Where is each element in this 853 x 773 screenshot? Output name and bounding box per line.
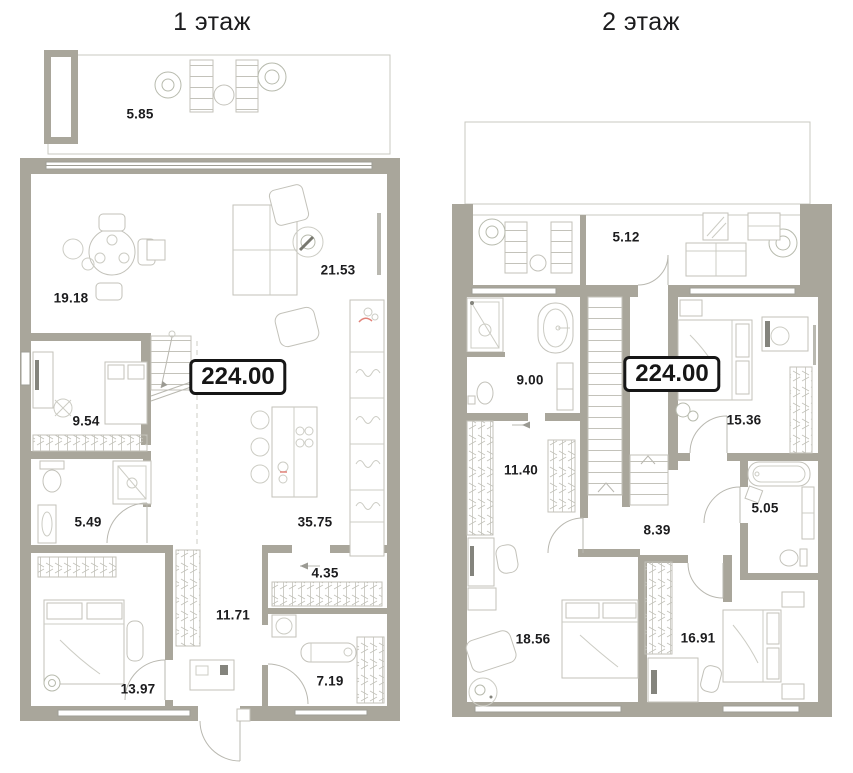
floor1-plan	[20, 50, 400, 761]
area-label-bedroom-1f: 13.97	[121, 682, 156, 697]
area-label-closet: 4.35	[311, 566, 338, 581]
floor2-plan	[452, 122, 832, 717]
floor1-title: 1 этаж	[173, 8, 251, 37]
area-label-utility: 7.19	[316, 674, 343, 689]
area-label-bedroom-3: 16.91	[681, 631, 716, 646]
area-label-bedroom-2: 18.56	[516, 632, 551, 647]
area-label-kitchen: 35.75	[298, 515, 333, 530]
area-label-dining: 19.18	[54, 291, 89, 306]
area-label-bathroom-2f-2: 5.05	[751, 501, 778, 516]
area-label-bathroom-2f: 9.00	[516, 373, 543, 388]
area-label-bathroom-1f: 5.49	[74, 515, 101, 530]
area-label-balcony: 5.12	[612, 230, 639, 245]
area-label-study: 9.54	[72, 414, 99, 429]
area-label-terrace: 5.85	[126, 107, 153, 122]
floor2-title: 2 этаж	[602, 8, 680, 37]
area-label-hallway: 11.71	[216, 608, 250, 623]
floorplan-canvas: 1 этаж 2 этаж 5.85 19.18 21.53 9.54 5.49…	[0, 0, 853, 773]
area-label-living: 21.53	[321, 263, 356, 278]
area-label-bedroom-master: 15.36	[727, 413, 762, 428]
area-label-wardrobe: 11.40	[504, 463, 538, 478]
total-area-badge-floor1: 224.00	[189, 359, 286, 395]
area-label-hall-2f: 8.39	[643, 523, 670, 538]
total-area-badge-floor2: 224.00	[623, 356, 720, 392]
